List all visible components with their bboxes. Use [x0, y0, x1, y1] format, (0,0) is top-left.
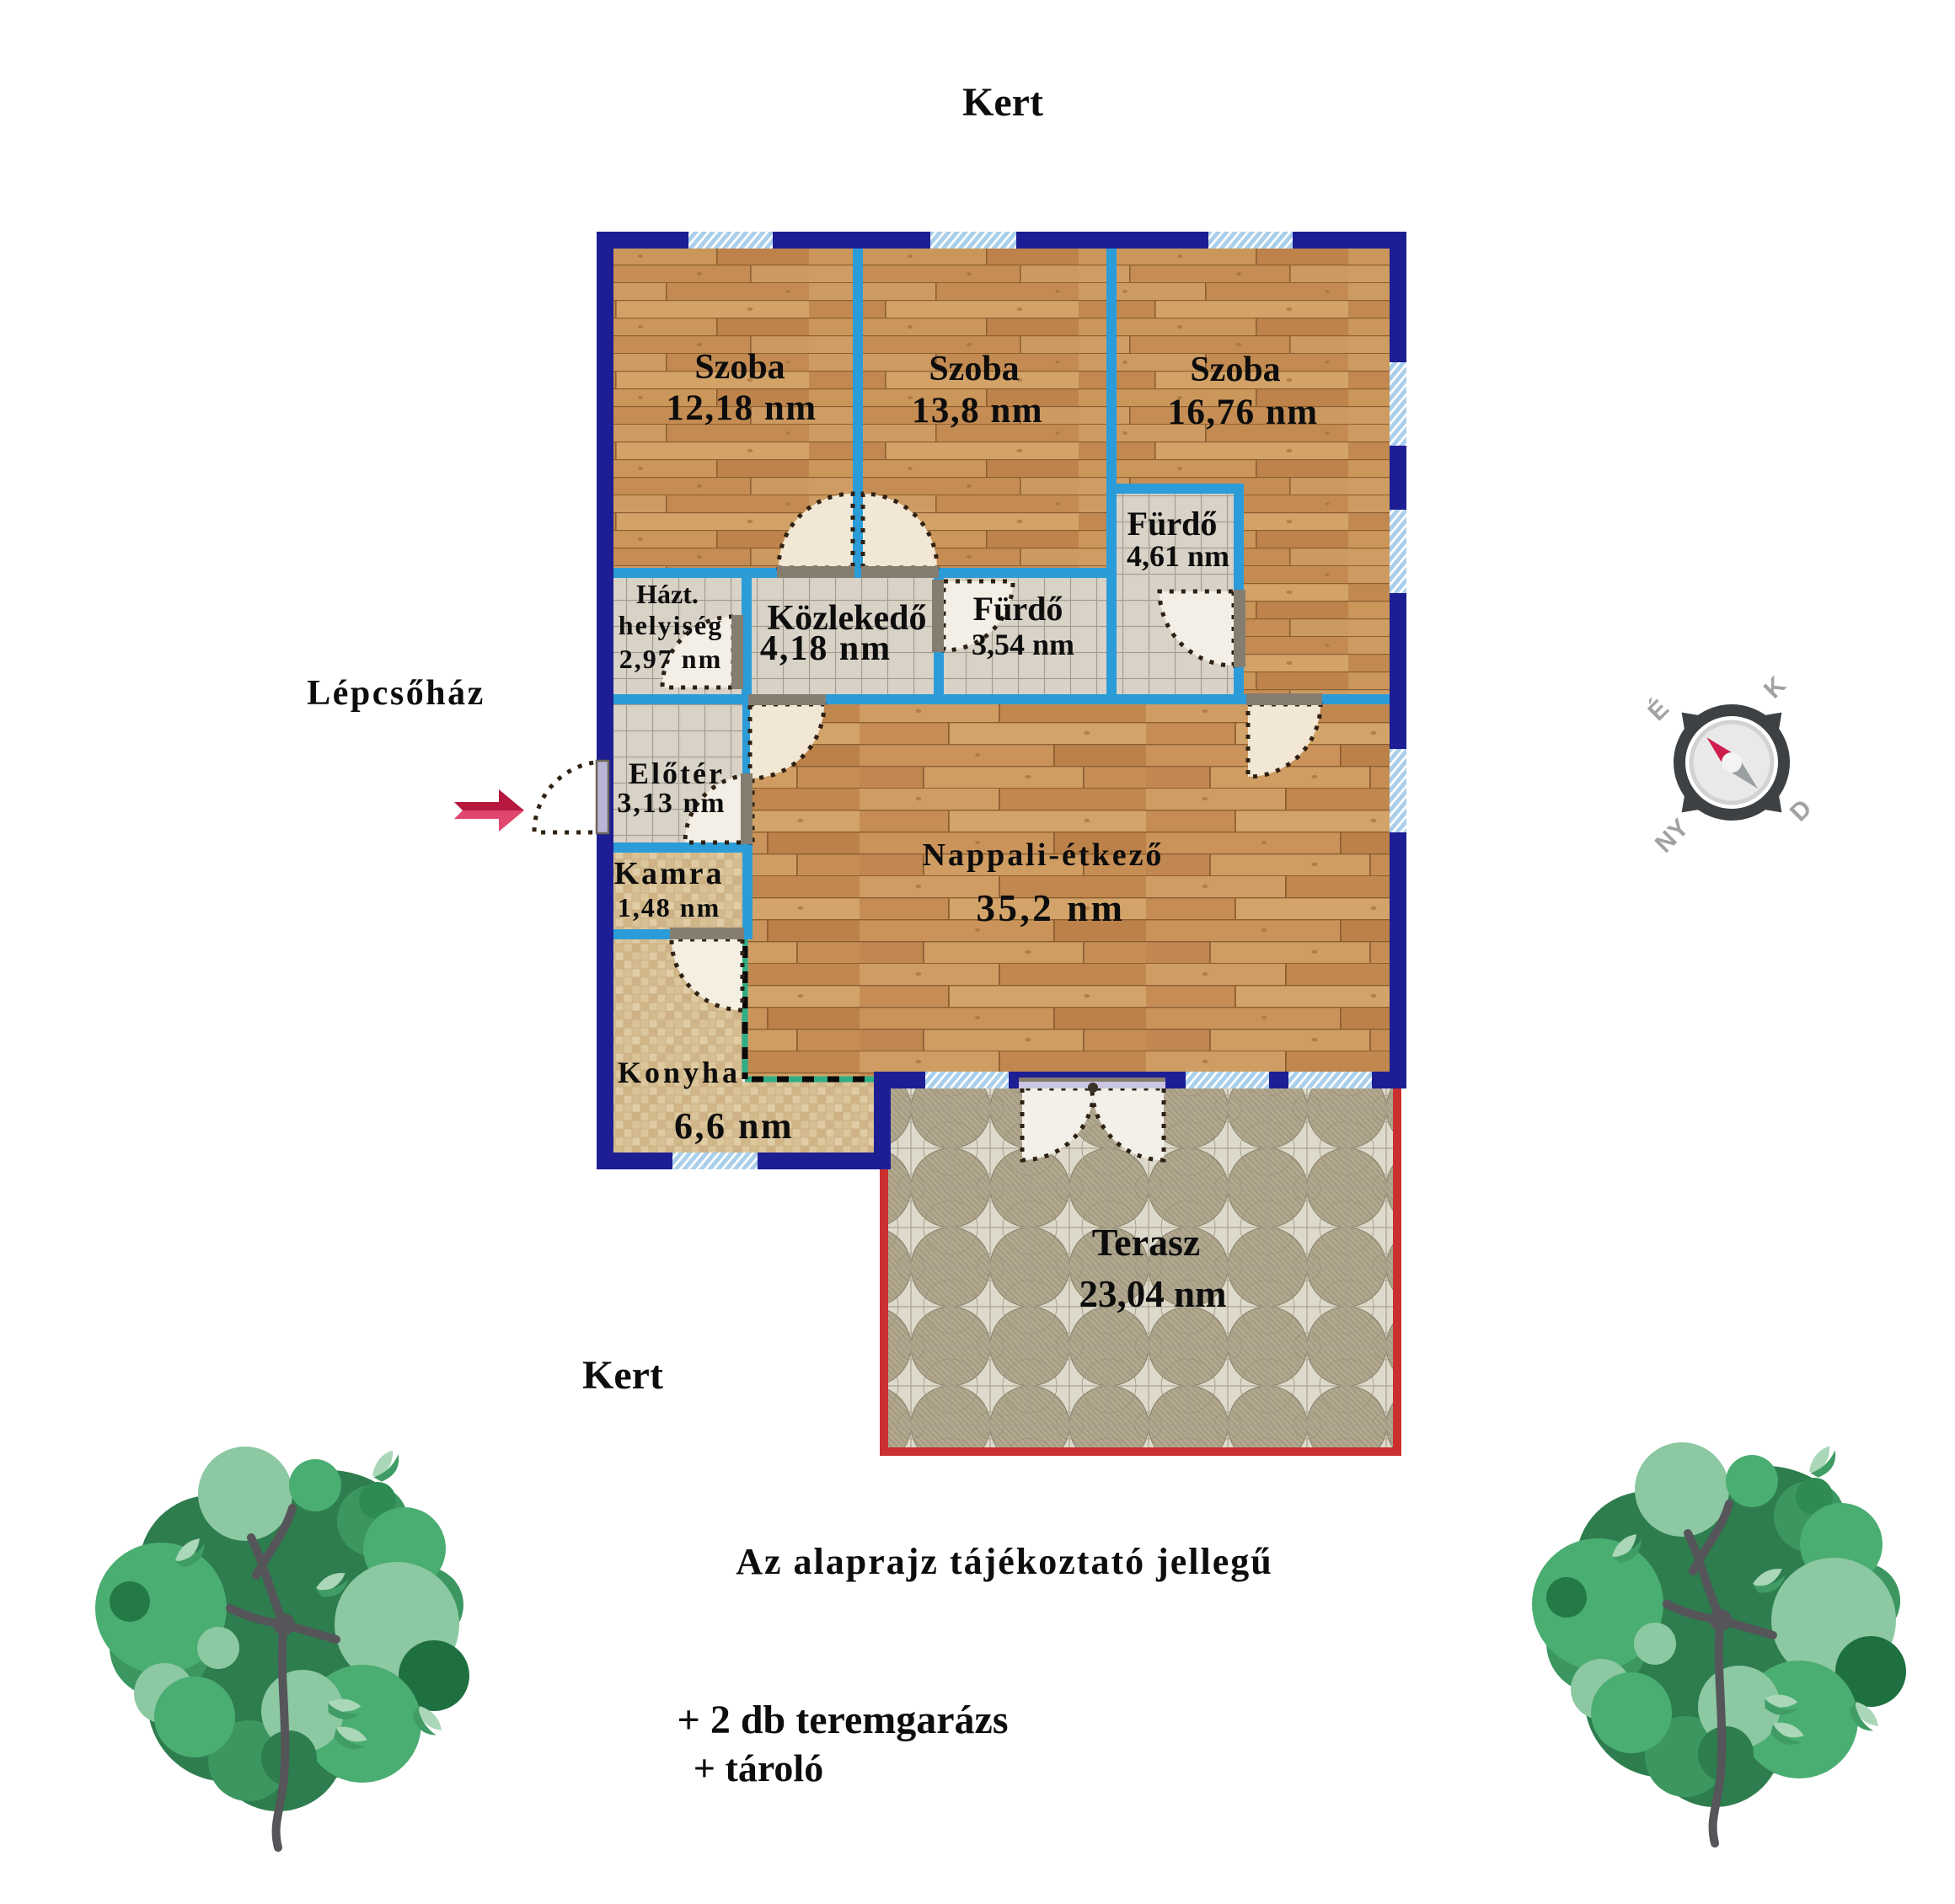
svg-text:6,6 nm: 6,6 nm [674, 1105, 794, 1147]
svg-text:3,54 nm: 3,54 nm [972, 628, 1074, 661]
svg-text:2,97 nm: 2,97 nm [619, 644, 722, 674]
svg-text:+ tároló: + tároló [694, 1746, 823, 1789]
svg-text:Kert: Kert [582, 1353, 663, 1398]
svg-text:Fürdő: Fürdő [1127, 505, 1218, 543]
svg-text:23,04 nm: 23,04 nm [1079, 1273, 1226, 1315]
svg-text:4,18 nm: 4,18 nm [760, 629, 892, 668]
svg-text:Előtér: Előtér [629, 757, 725, 790]
svg-text:Fürdő: Fürdő [973, 590, 1063, 628]
svg-text:Nappali-étkező: Nappali-étkező [923, 837, 1165, 873]
svg-text:1,48 nm: 1,48 nm [618, 892, 720, 923]
svg-text:Szoba: Szoba [694, 348, 785, 387]
svg-text:Terasz: Terasz [1092, 1221, 1201, 1264]
svg-text:Az alaprajz tájékoztató jelleg: Az alaprajz tájékoztató jellegű [736, 1541, 1272, 1582]
svg-text:Konyha: Konyha [618, 1056, 741, 1089]
svg-text:12,18 nm: 12,18 nm [666, 388, 817, 428]
svg-text:Kamra: Kamra [613, 856, 724, 891]
svg-text:Szoba: Szoba [929, 350, 1019, 388]
svg-text:13,8 nm: 13,8 nm [912, 391, 1043, 431]
svg-text:16,76 nm: 16,76 nm [1167, 393, 1318, 432]
svg-text:35,2 nm: 35,2 nm [976, 887, 1125, 929]
svg-text:Szoba: Szoba [1190, 350, 1280, 389]
svg-text:Kert: Kert [962, 80, 1043, 125]
svg-text:Házt.: Házt. [636, 579, 699, 609]
svg-text:Lépcsőház: Lépcsőház [307, 674, 485, 713]
svg-text:4,61 nm: 4,61 nm [1127, 539, 1229, 573]
svg-text:+ 2 db teremgarázs: + 2 db teremgarázs [677, 1698, 1008, 1742]
svg-text:3,13 nm: 3,13 nm [617, 788, 726, 819]
svg-text:helyiség: helyiség [619, 610, 723, 640]
